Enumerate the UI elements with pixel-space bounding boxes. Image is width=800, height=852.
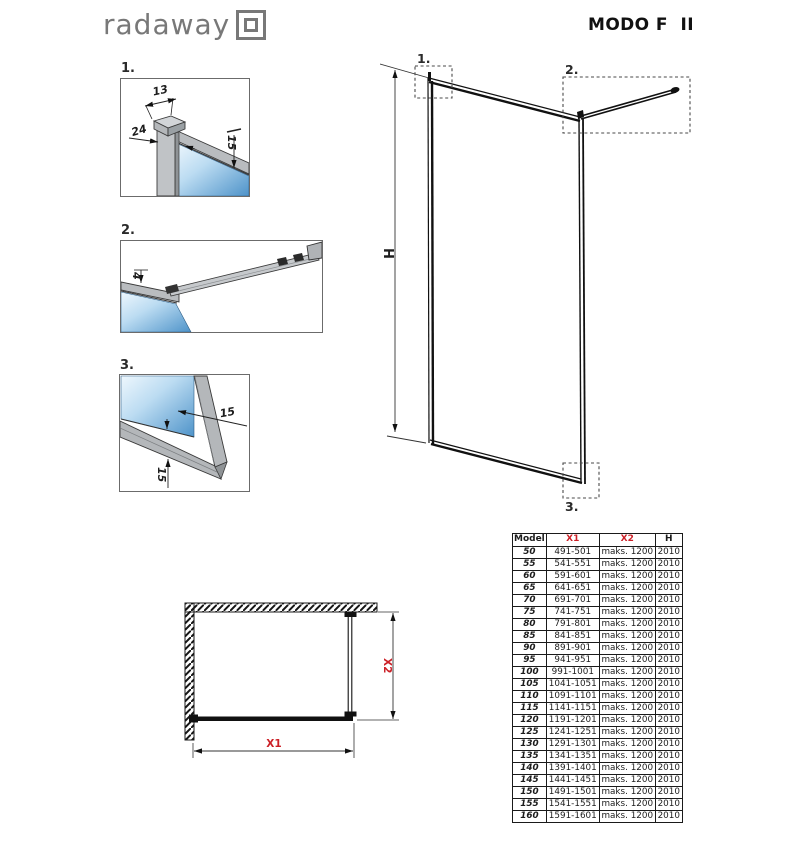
- table-cell: 50: [513, 546, 547, 558]
- wall-top: [185, 603, 377, 612]
- table-cell: maks. 1200: [599, 558, 655, 570]
- detail-2-label: 2.: [121, 223, 135, 238]
- table-cell: maks. 1200: [599, 762, 655, 774]
- wall-mount-plate: [307, 242, 322, 260]
- table-cell: 95: [513, 654, 547, 666]
- table-row: 50491-501maks. 12002010: [513, 546, 683, 558]
- col-header-h: H: [655, 534, 682, 547]
- table-cell: 115: [513, 702, 547, 714]
- table-cell: 105: [513, 678, 547, 690]
- table-cell: maks. 1200: [599, 738, 655, 750]
- detail-1-svg: 13 24 15: [121, 79, 249, 196]
- table-cell: 1391-1401: [546, 762, 599, 774]
- ext-line: [146, 106, 152, 119]
- table-cell: 2010: [655, 654, 682, 666]
- table-cell: 2010: [655, 594, 682, 606]
- table-cell: 2010: [655, 678, 682, 690]
- detail-2-drawing: 4: [120, 240, 323, 333]
- dim-tick: [227, 129, 241, 132]
- brand-square-icon: [236, 10, 266, 40]
- main-elevation-drawing: H 1. 2. 3.: [380, 50, 710, 520]
- spec-table-header-row: Model X1 X2 H: [513, 534, 683, 547]
- table-cell: 65: [513, 582, 547, 594]
- table-cell: 2010: [655, 618, 682, 630]
- table-cell: 2010: [655, 582, 682, 594]
- dim-label-24: 24: [130, 122, 148, 139]
- ext-line-bottom: [387, 436, 426, 443]
- dim-label-x1: X1: [266, 738, 281, 750]
- table-cell: 691-701: [546, 594, 599, 606]
- dim-label-4: 4: [130, 271, 143, 280]
- table-cell: 1491-1501: [546, 786, 599, 798]
- table-row: 1051041-1051maks. 12002010: [513, 678, 683, 690]
- table-cell: maks. 1200: [599, 582, 655, 594]
- table-cell: maks. 1200: [599, 606, 655, 618]
- table-row: 1301291-1301maks. 12002010: [513, 738, 683, 750]
- table-row: 85841-851maks. 12002010: [513, 630, 683, 642]
- table-cell: 841-851: [546, 630, 599, 642]
- table-cell: maks. 1200: [599, 654, 655, 666]
- table-cell: 2010: [655, 750, 682, 762]
- table-cell: 2010: [655, 666, 682, 678]
- table-cell: 100: [513, 666, 547, 678]
- table-cell: 2010: [655, 606, 682, 618]
- main-callout-3: 3.: [565, 499, 578, 514]
- table-cell: maks. 1200: [599, 678, 655, 690]
- table-row: 55541-551maks. 12002010: [513, 558, 683, 570]
- table-cell: 2010: [655, 810, 682, 822]
- detail-3-svg: 15 15: [120, 375, 249, 491]
- table-cell: maks. 1200: [599, 714, 655, 726]
- table-cell: 70: [513, 594, 547, 606]
- bar-top-connector: [345, 612, 357, 617]
- detail-1-drawing: 13 24 15: [120, 78, 250, 197]
- table-cell: 2010: [655, 726, 682, 738]
- table-cell: 2010: [655, 786, 682, 798]
- table-cell: maks. 1200: [599, 642, 655, 654]
- table-cell: 591-601: [546, 570, 599, 582]
- profile-mid-line: [120, 428, 217, 472]
- table-row: 90891-901maks. 12002010: [513, 642, 683, 654]
- table-row: 80791-801maks. 12002010: [513, 618, 683, 630]
- support-bar-edge: [170, 257, 318, 293]
- table-row: 60591-601maks. 12002010: [513, 570, 683, 582]
- table-cell: 1141-1151: [546, 702, 599, 714]
- panel-left-edge-thick: [432, 81, 433, 445]
- table-cell: maks. 1200: [599, 618, 655, 630]
- table-row: 1151141-1151maks. 12002010: [513, 702, 683, 714]
- table-cell: 1191-1201: [546, 714, 599, 726]
- dim-label-15: 15: [225, 135, 238, 151]
- panel-bottom-edge: [430, 440, 581, 479]
- table-cell: 2010: [655, 798, 682, 810]
- table-cell: 541-551: [546, 558, 599, 570]
- table-row: 1451441-1451maks. 12002010: [513, 774, 683, 786]
- table-cell: 741-751: [546, 606, 599, 618]
- table-cell: 60: [513, 570, 547, 582]
- table-cell: 135: [513, 750, 547, 762]
- table-cell: 791-801: [546, 618, 599, 630]
- support-arm-line: [581, 89, 676, 116]
- table-cell: maks. 1200: [599, 810, 655, 822]
- table-cell: 2010: [655, 738, 682, 750]
- wall-mount-profile: [189, 715, 198, 723]
- table-row: 1551541-1551maks. 12002010: [513, 798, 683, 810]
- table-cell: maks. 1200: [599, 774, 655, 786]
- table-cell: 1441-1451: [546, 774, 599, 786]
- right-profile: [194, 376, 227, 467]
- dim-label-h: H: [380, 248, 395, 259]
- table-cell: 2010: [655, 546, 682, 558]
- dim-label-x2: X2: [381, 658, 393, 673]
- table-cell: 80: [513, 618, 547, 630]
- table-cell: 130: [513, 738, 547, 750]
- table-row: 1501491-1501maks. 12002010: [513, 786, 683, 798]
- table-cell: 941-951: [546, 654, 599, 666]
- table-cell: 2010: [655, 558, 682, 570]
- table-cell: 1541-1551: [546, 798, 599, 810]
- table-cell: maks. 1200: [599, 726, 655, 738]
- table-cell: 2010: [655, 762, 682, 774]
- dim-line-13: [145, 99, 176, 106]
- support-arm-line: [581, 92, 676, 119]
- panel-right-edge: [579, 117, 581, 483]
- table-cell: maks. 1200: [599, 546, 655, 558]
- table-cell: 2010: [655, 774, 682, 786]
- table-cell: 2010: [655, 630, 682, 642]
- ext-line: [171, 98, 173, 115]
- brand-logo: radaway: [103, 10, 266, 40]
- table-row: 1351341-1351maks. 12002010: [513, 750, 683, 762]
- wall-profile-bar: [157, 125, 175, 196]
- bar-bottom-connector: [345, 712, 357, 717]
- table-cell: maks. 1200: [599, 690, 655, 702]
- main-callout-1: 1.: [417, 51, 430, 66]
- detail-3-label: 3.: [120, 358, 134, 373]
- table-cell: 140: [513, 762, 547, 774]
- col-header-model: Model: [513, 534, 547, 547]
- table-cell: maks. 1200: [599, 570, 655, 582]
- table-cell: 1041-1051: [546, 678, 599, 690]
- dim-leader-24: [129, 138, 158, 142]
- table-row: 95941-951maks. 12002010: [513, 654, 683, 666]
- table-cell: 1591-1601: [546, 810, 599, 822]
- table-row: 1401391-1401maks. 12002010: [513, 762, 683, 774]
- table-cell: 120: [513, 714, 547, 726]
- table-cell: 145: [513, 774, 547, 786]
- col-header-x1: X1: [546, 534, 599, 547]
- table-cell: 891-901: [546, 642, 599, 654]
- table-cell: 85: [513, 630, 547, 642]
- spec-table-body: 50491-501maks. 1200201055541-551maks. 12…: [513, 546, 683, 822]
- table-cell: 1291-1301: [546, 738, 599, 750]
- table-cell: maks. 1200: [599, 750, 655, 762]
- detail-2-svg: 4: [121, 241, 322, 332]
- table-cell: 90: [513, 642, 547, 654]
- table-cell: 55: [513, 558, 547, 570]
- detail-1-label: 1.: [121, 61, 135, 76]
- glass-panel-plan: [194, 717, 353, 722]
- page-title: MODO F II: [588, 15, 694, 35]
- table-cell: 2010: [655, 570, 682, 582]
- table-row: 1201191-1201maks. 12002010: [513, 714, 683, 726]
- bar-side-face: [175, 131, 179, 196]
- table-cell: 1241-1251: [546, 726, 599, 738]
- panel-left-edge: [428, 78, 429, 443]
- table-cell: 110: [513, 690, 547, 702]
- table-cell: 991-1001: [546, 666, 599, 678]
- panel-right-edge-thick: [583, 118, 585, 484]
- table-row: 70691-701maks. 12002010: [513, 594, 683, 606]
- table-row: 100991-1001maks. 12002010: [513, 666, 683, 678]
- main-callout-2: 2.: [565, 62, 578, 77]
- detail-3-drawing: 15 15: [119, 374, 250, 492]
- table-row: 1601591-1601maks. 12002010: [513, 810, 683, 822]
- table-cell: 2010: [655, 642, 682, 654]
- table-cell: 1341-1351: [546, 750, 599, 762]
- callout-box-2: [563, 77, 690, 133]
- table-row: 65641-651maks. 12002010: [513, 582, 683, 594]
- table-row: 75741-751maks. 12002010: [513, 606, 683, 618]
- plan-view-drawing: X2 X1: [165, 585, 415, 775]
- table-row: 1251241-1251maks. 12002010: [513, 726, 683, 738]
- table-cell: maks. 1200: [599, 702, 655, 714]
- table-cell: maks. 1200: [599, 666, 655, 678]
- col-header-x2: X2: [599, 534, 655, 547]
- table-cell: 150: [513, 786, 547, 798]
- table-cell: maks. 1200: [599, 798, 655, 810]
- dim-label-13: 13: [151, 83, 169, 99]
- table-cell: 155: [513, 798, 547, 810]
- table-cell: 2010: [655, 714, 682, 726]
- table-cell: 160: [513, 810, 547, 822]
- table-cell: 641-651: [546, 582, 599, 594]
- table-cell: 2010: [655, 702, 682, 714]
- panel-bottom-edge-thick: [431, 444, 582, 483]
- table-cell: maks. 1200: [599, 630, 655, 642]
- table-cell: 75: [513, 606, 547, 618]
- table-cell: maks. 1200: [599, 594, 655, 606]
- table-cell: maks. 1200: [599, 786, 655, 798]
- table-cell: 491-501: [546, 546, 599, 558]
- table-cell: 2010: [655, 690, 682, 702]
- table-cell: 1091-1101: [546, 690, 599, 702]
- dim-label-15-bottom: 15: [155, 467, 168, 483]
- brand-logo-text: radaway: [103, 11, 230, 39]
- spec-table: Model X1 X2 H 50491-501maks. 12002010555…: [512, 533, 683, 823]
- dim-label-15-glass: 15: [219, 405, 237, 421]
- table-row: 1101091-1101maks. 12002010: [513, 690, 683, 702]
- table-cell: 125: [513, 726, 547, 738]
